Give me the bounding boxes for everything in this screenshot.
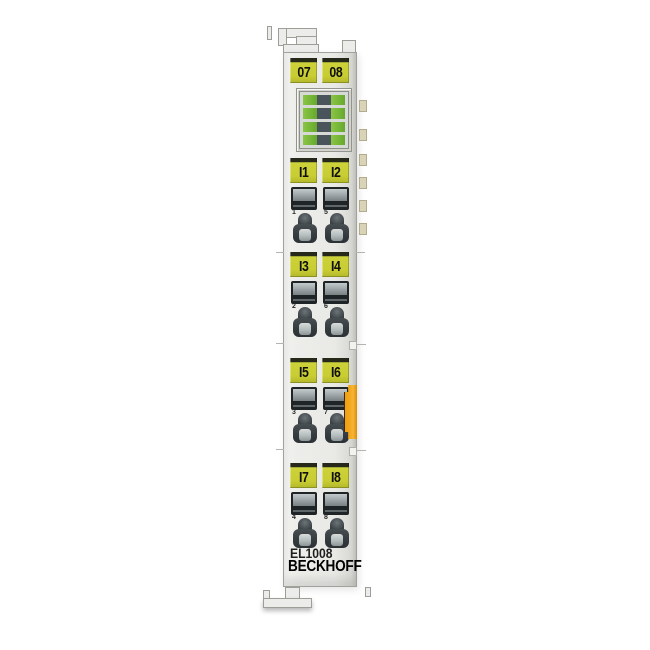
led-green-icon: [303, 122, 317, 132]
wire-hole: [293, 307, 317, 337]
wire-port: [331, 429, 343, 441]
side-contact: [359, 223, 367, 235]
led-label-08: 08: [322, 58, 349, 83]
spring-clamp: [291, 281, 317, 304]
led-row: [303, 135, 345, 145]
channel-label-i6: I6: [322, 358, 349, 383]
led-divider: [317, 122, 330, 132]
side-contact: [359, 100, 367, 112]
product-photo-el1008: 07 08 I1 I2 1 5 I3 I4 2 6: [0, 0, 650, 650]
led-divider: [317, 135, 330, 145]
housing-seam: [356, 252, 365, 253]
led-label-07: 07: [290, 58, 317, 83]
wire-hole: [325, 518, 349, 548]
channel-group-1: I1 I2 1 5: [283, 158, 357, 250]
wire-hole: [293, 213, 317, 243]
led-array: [299, 91, 349, 149]
mounting-hook-bottom-bar: [263, 598, 312, 608]
led-green-icon: [303, 95, 317, 105]
housing-seam: [276, 343, 284, 344]
channel-label-text: I7: [299, 465, 308, 486]
led-green-icon: [331, 135, 345, 145]
wire-hole: [293, 518, 317, 548]
brand-text: BECKHOFF: [288, 558, 362, 576]
spring-clamp: [323, 187, 349, 210]
led-green-icon: [331, 122, 345, 132]
top-guide-pin: [267, 26, 272, 40]
wire-port: [299, 429, 311, 441]
led-divider: [317, 108, 330, 118]
channel-label-i4: I4: [322, 252, 349, 277]
channel-label-text: I4: [331, 254, 340, 275]
channel-label-text: I6: [331, 360, 340, 381]
channel-label-text: I1: [299, 160, 308, 181]
led-row: [303, 122, 345, 132]
wire-port: [299, 323, 311, 335]
led-green-icon: [303, 108, 317, 118]
led-divider: [317, 95, 330, 105]
housing-seam: [276, 449, 284, 450]
wire-port: [299, 534, 311, 546]
channel-label-i2: I2: [322, 158, 349, 183]
side-contact: [359, 177, 367, 189]
wire-port: [331, 323, 343, 335]
spring-clamp: [323, 281, 349, 304]
side-contact: [359, 129, 367, 141]
wire-hole: [325, 307, 349, 337]
channel-label-text: I8: [331, 465, 340, 486]
side-contact: [359, 154, 367, 166]
led-row: [303, 95, 345, 105]
channel-label-i1: I1: [290, 158, 317, 183]
channel-label-text: I3: [299, 254, 308, 275]
led-label-08-text: 08: [329, 60, 342, 81]
led-green-icon: [331, 95, 345, 105]
led-green-icon: [303, 135, 317, 145]
spring-clamp: [323, 492, 349, 515]
wire-hole: [325, 213, 349, 243]
side-contact: [359, 200, 367, 212]
channel-label-text: I2: [331, 160, 340, 181]
channel-label-i7: I7: [290, 463, 317, 488]
channel-label-i5: I5: [290, 358, 317, 383]
wire-hole: [293, 413, 317, 443]
led-green-icon: [331, 108, 345, 118]
channel-label-i8: I8: [322, 463, 349, 488]
channel-label-text: I5: [299, 360, 308, 381]
bottom-guide-pin: [365, 587, 371, 597]
spring-clamp: [291, 387, 317, 410]
channel-group-4: I7 I8 4 8: [283, 463, 357, 555]
housing-notch: [349, 447, 357, 456]
led-label-07-text: 07: [297, 60, 310, 81]
wire-port: [299, 229, 311, 241]
led-block: [296, 88, 352, 152]
led-row: [303, 108, 345, 118]
channel-label-i3: I3: [290, 252, 317, 277]
wire-port: [331, 229, 343, 241]
housing-seam: [357, 344, 366, 345]
housing-notch: [349, 341, 357, 350]
housing-seam: [357, 450, 366, 451]
spring-clamp: [291, 492, 317, 515]
release-latch-orange: [344, 385, 357, 439]
spring-clamp: [291, 187, 317, 210]
wire-port: [331, 534, 343, 546]
channel-group-2: I3 I4 2 6: [283, 252, 357, 344]
